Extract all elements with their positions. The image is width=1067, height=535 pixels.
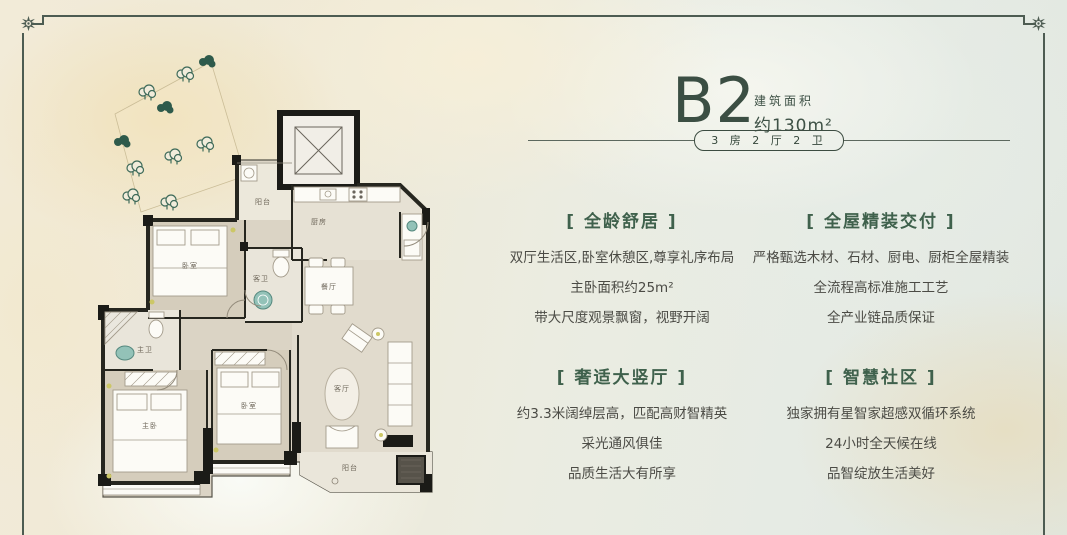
feature-line: 带大尺度观景飘窗，视野开阔 — [497, 303, 747, 333]
feature-comfort: [ 全龄舒居 ] 双厅生活区,卧室休憩区,尊享礼序布局 主卧面积约25m² 带大… — [497, 207, 747, 333]
feature-line: 品质生活大有所享 — [497, 459, 747, 489]
divider-line — [844, 140, 1010, 141]
feature-line: 主卧面积约25m² — [497, 273, 747, 303]
room-label-bedroom-b: 卧室 — [241, 401, 257, 410]
feature-header: [ 奢适大竖厅 ] — [497, 363, 747, 388]
poster: B2 建筑面积 约130m² 3 房 2 厅 2 卫 [ 全龄舒居 ] 双厅生活… — [0, 0, 1067, 535]
elevator-shaft — [280, 113, 357, 187]
room-label-dining: 餐厅 — [321, 282, 337, 291]
feature-line: 24小时全天候在线 — [747, 429, 1015, 459]
feature-grid: [ 全龄舒居 ] 双厅生活区,卧室休憩区,尊享礼序布局 主卧面积约25m² 带大… — [497, 207, 1015, 489]
room-label-master-bath: 主卫 — [137, 345, 153, 354]
rosette-icon — [1030, 15, 1047, 32]
divider-line — [528, 140, 694, 141]
feature-line: 全产业链品质保证 — [747, 303, 1015, 333]
unit-code: B2 — [672, 70, 756, 132]
feature-header: [ 全龄舒居 ] — [497, 207, 747, 232]
room-label-kitchen: 厨房 — [311, 217, 327, 226]
feature-line: 采光通风俱佳 — [497, 429, 747, 459]
area-label: 建筑面积 — [754, 92, 833, 109]
frame-left-line — [22, 33, 24, 535]
feature-header: [ 全屋精装交付 ] — [747, 207, 1015, 232]
frame-top-line — [43, 15, 1024, 17]
landscape-garden — [114, 55, 245, 212]
spec-divider: 3 房 2 厅 2 卫 — [528, 130, 1010, 150]
spec-badge: 3 房 2 厅 2 卫 — [694, 130, 843, 151]
room-label-balcony-bottom: 阳台 — [342, 463, 358, 472]
frame-right-line — [1043, 33, 1045, 535]
room-label-guest-bath: 客卫 — [253, 274, 269, 283]
rosette-icon — [20, 15, 37, 32]
feature-community: [ 智慧社区 ] 独家拥有星智家超感双循环系统 24小时全天候在线 品智绽放生活… — [747, 363, 1015, 489]
feature-line: 全流程高标准施工工艺 — [747, 273, 1015, 303]
room-label-balcony-top: 阳台 — [255, 197, 271, 206]
feature-decoration: [ 全屋精装交付 ] 严格甄选木材、石材、厨电、厨柜全屋精装 全流程高标准施工工… — [747, 207, 1015, 333]
feature-line: 双厅生活区,卧室休憩区,尊享礼序布局 — [497, 243, 747, 273]
feature-line: 独家拥有星智家超感双循环系统 — [747, 399, 1015, 429]
room-label-bedroom-a: 卧室 — [182, 261, 198, 270]
feature-header: [ 智慧社区 ] — [747, 363, 1015, 388]
feature-line: 约3.3米阔绰层高，匹配高财智精英 — [497, 399, 747, 429]
floor-plan: 阳台 厨房 客卫 餐厅 客厅 主卫 主卧 卧室 卧室 阳台 — [95, 50, 440, 505]
feature-line: 品智绽放生活美好 — [747, 459, 1015, 489]
feature-hall: [ 奢适大竖厅 ] 约3.3米阔绰层高，匹配高财智精英 采光通风俱佳 品质生活大… — [497, 363, 747, 489]
feature-line: 严格甄选木材、石材、厨电、厨柜全屋精装 — [747, 243, 1015, 273]
room-label-master-bedroom: 主卧 — [142, 421, 158, 430]
room-label-living: 客厅 — [334, 384, 350, 393]
